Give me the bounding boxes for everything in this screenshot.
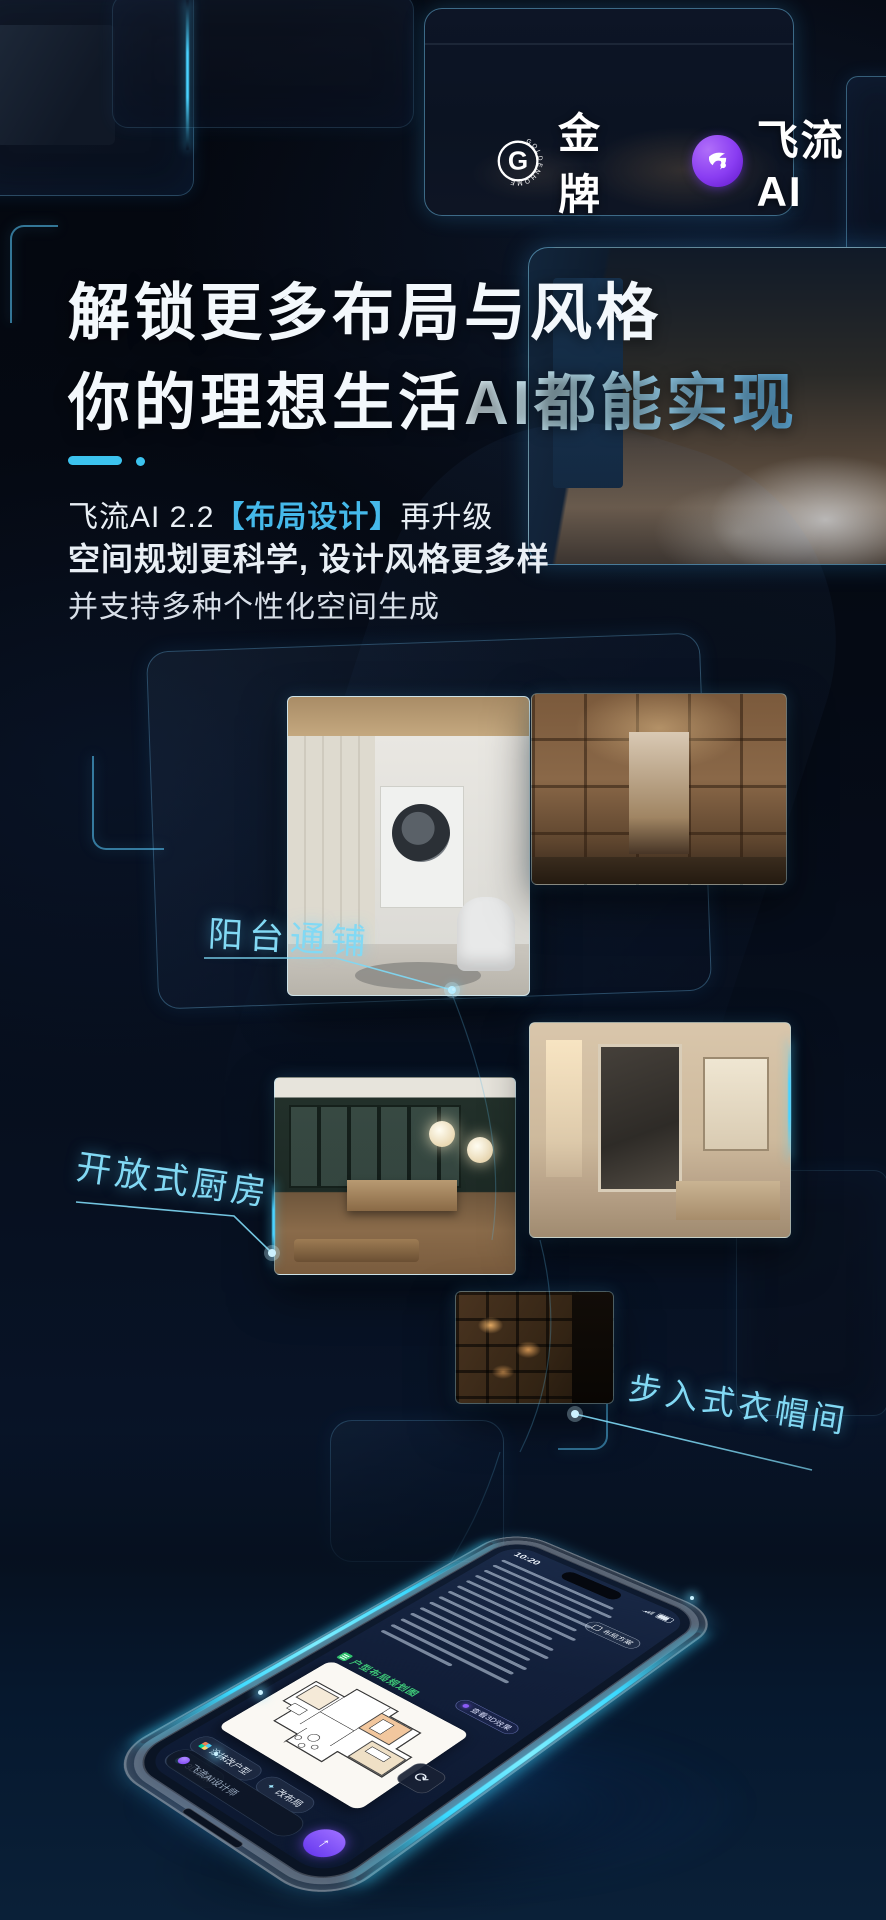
send-arrow-icon: ↑ bbox=[312, 1835, 336, 1851]
bathroom-light bbox=[546, 1040, 582, 1177]
feiliu-logo-icon bbox=[692, 135, 742, 187]
status-icons bbox=[641, 1607, 675, 1623]
goldenhome-logo-icon: GOLDENHOME G bbox=[492, 134, 544, 188]
subtitle-line1: 飞流AI 2.2【布局设计】再升级 bbox=[68, 492, 493, 536]
battery-icon bbox=[654, 1613, 674, 1623]
bathroom-mirror bbox=[703, 1057, 769, 1151]
dining-table bbox=[294, 1239, 419, 1263]
photo-bathroom bbox=[529, 1022, 791, 1238]
sparkle-dot bbox=[452, 988, 455, 991]
glow-edge-top-left bbox=[186, 0, 189, 150]
glass-corner-left-mid bbox=[92, 756, 164, 850]
subtitle-line1-prefix: 飞流AI 2.2 bbox=[68, 501, 214, 534]
feiliu-brand-name: 飞流AI bbox=[757, 107, 886, 216]
photo-bookshelf bbox=[455, 1291, 614, 1404]
refresh-icon: ⟳ bbox=[408, 1770, 435, 1787]
plan-badge-label: 布局方案 bbox=[600, 1628, 636, 1646]
subtitle-line2: 空间规划更科学, 设计风格更多样 bbox=[68, 534, 550, 580]
marble-wall bbox=[598, 1044, 682, 1191]
headline-line2-prefix: 你的理想生活 bbox=[68, 369, 464, 438]
headline-line2-accent: AI都能实现 bbox=[464, 369, 798, 438]
goldenhome-brand-name: 金牌 bbox=[558, 100, 643, 222]
pendant-lamp bbox=[429, 1121, 455, 1147]
kitchen-cabinets bbox=[289, 1105, 461, 1187]
sparkle-dot bbox=[214, 1752, 218, 1756]
subtitle-line1-accent: 【布局设计】 bbox=[214, 501, 400, 534]
closet-floor bbox=[532, 857, 786, 884]
photo-walkin-closet bbox=[531, 693, 787, 885]
photo-open-kitchen bbox=[274, 1077, 516, 1275]
send-button[interactable]: ↑ bbox=[294, 1824, 354, 1863]
sparkle-dot bbox=[258, 1690, 263, 1695]
glow-edge-kitchen bbox=[272, 1180, 275, 1264]
closet-aisle bbox=[629, 732, 690, 854]
accent-dash bbox=[68, 456, 122, 465]
subtitle-line3: 并支持多种个性化空间生成 bbox=[68, 582, 440, 626]
goldenhome-letter: G bbox=[508, 146, 528, 176]
floorplan-chip-icon bbox=[198, 1741, 212, 1750]
laundry-chair bbox=[457, 897, 515, 971]
signal-icon bbox=[642, 1608, 656, 1615]
laundry-ceiling bbox=[288, 697, 529, 736]
layout-icon bbox=[591, 1624, 604, 1631]
bookshelf-doorway bbox=[572, 1292, 613, 1403]
headline-line2: 你的理想生活AI都能实现 bbox=[68, 352, 798, 442]
callout-balcony: 阳台通铺 bbox=[207, 906, 373, 966]
poster-root: GOLDENHOME G 金牌 飞流AI 解锁更多布局与风格 你的理想生活AI都… bbox=[0, 0, 886, 1920]
washing-machine bbox=[392, 804, 450, 862]
document-icon bbox=[336, 1652, 354, 1662]
subtitle-line1-suffix: 再升级 bbox=[400, 501, 493, 534]
glow-edge-bathroom bbox=[788, 1040, 791, 1160]
glass-corner-left-top bbox=[10, 225, 58, 323]
kitchen-island bbox=[347, 1180, 457, 1211]
accent-dash-dot bbox=[136, 457, 145, 466]
pendant-lamp bbox=[467, 1137, 493, 1163]
sparkle-icon bbox=[461, 1703, 470, 1708]
brand-logos: GOLDENHOME G 金牌 飞流AI bbox=[492, 100, 886, 222]
bathroom-vanity bbox=[676, 1181, 780, 1220]
assistant-avatar-icon bbox=[175, 1755, 192, 1765]
wand-icon: ✦ bbox=[264, 1782, 279, 1791]
sparkle-dot bbox=[690, 1596, 694, 1600]
bg-photo-top-middle bbox=[112, 0, 414, 128]
view-3d-label: 查看3D效果 bbox=[468, 1706, 515, 1732]
headline-line1: 解锁更多布局与风格 bbox=[68, 262, 662, 352]
